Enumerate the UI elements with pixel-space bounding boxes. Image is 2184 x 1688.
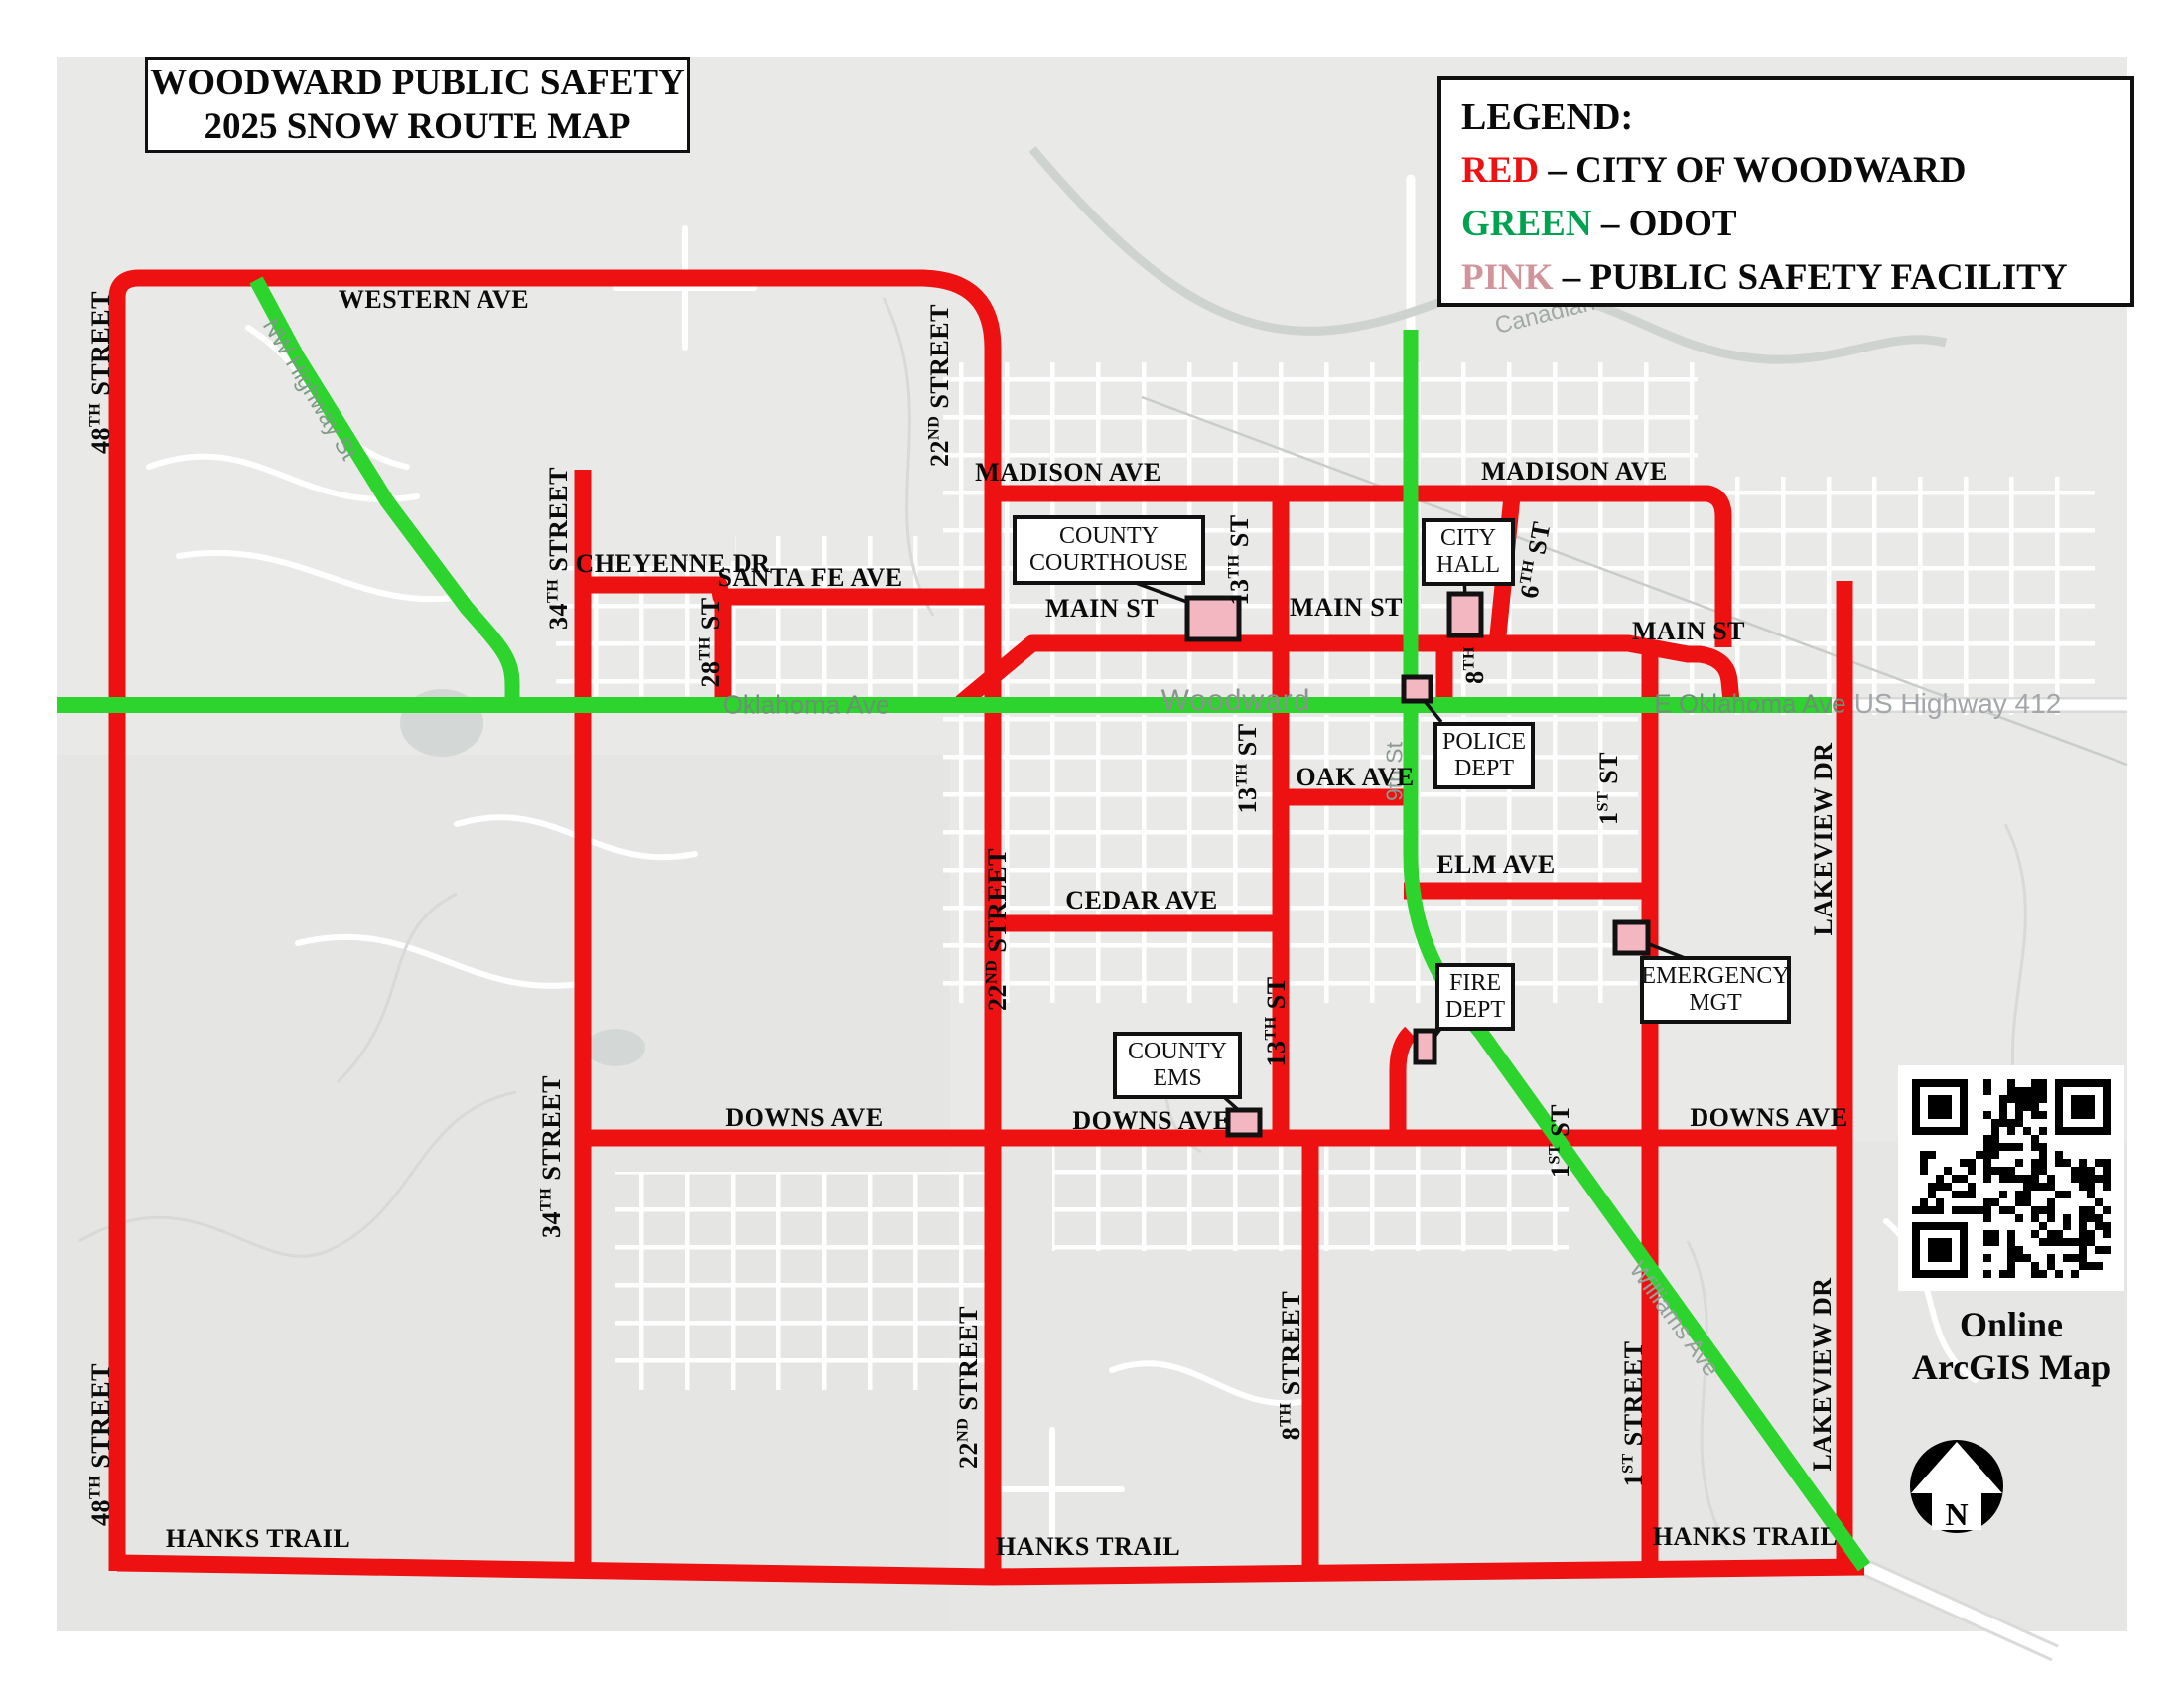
street-label-lakeview-dr-south: LAKEVIEW DR [1808,1277,1838,1471]
snow-route-map-page: N WOODWARD PUBLIC SAFETY 2025 SNOW ROUTE… [0,0,2184,1688]
street-label-13th-st-north: 13TH ST [1225,514,1255,605]
street-label-hanks-trail-center: HANKS TRAIL [996,1532,1180,1562]
street-label-1st-st-middle: 1ST ST [1546,1104,1575,1178]
callout-city-hall: CITY HALL [1422,518,1515,586]
callout-county-ems: COUNTY EMS [1113,1032,1242,1099]
map-label-e-oklahoma-ave: E Oklahoma Ave [1654,689,1845,720]
facility-square-city-hall [1449,594,1481,635]
street-label-22nd-street-middle: 22ND STREET [983,848,1013,1011]
street-label-34th-street-north: 34TH STREET [544,467,574,630]
street-label-13th-st-middle: 13TH ST [1233,723,1263,813]
legend-desc-green: ODOT [1629,204,1737,244]
street-label-santa-fe-ave: SANTA FE AVE [717,563,902,593]
street-label-main-st-center: MAIN ST [1290,593,1403,623]
pond-34th [586,1029,645,1066]
street-label-downs-ave-center: DOWNS AVE [1072,1106,1230,1136]
facility-square-fire [1416,1031,1434,1062]
callout-fire-dept: FIRE DEPT [1435,963,1515,1031]
legend: LEGEND: RED – CITY OF WOODWARD GREEN – O… [1437,76,2134,307]
legend-sep-red: – [1539,150,1575,191]
callout-emergency-mgt: EMERGENCY MGT [1640,956,1791,1024]
street-label-1st-street-south: 1ST STREET [1619,1341,1649,1487]
legend-sep-pink: – [1554,257,1590,298]
street-label-oak-ave: OAK AVE [1296,763,1414,792]
qr-code [1898,1065,2124,1291]
callout-county-courthouse: COUNTY COURTHOUSE [1013,515,1205,585]
street-label-madison-ave-west: MADISON AVE [975,458,1161,488]
map-label-woodward: Woodward [1161,684,1311,718]
street-label-8th: 8TH [1460,646,1490,684]
qr-caption-line2: ArcGIS Map [1912,1346,2111,1388]
street-label-madison-ave-east: MADISON AVE [1481,457,1668,487]
street-label-28th-st: 28TH ST [696,597,726,687]
street-label-elm-ave: ELM AVE [1436,850,1555,880]
north-arrow: N [1910,1440,2003,1533]
map-title-box: WOODWARD PUBLIC SAFETY 2025 SNOW ROUTE M… [145,57,690,153]
street-label-22nd-street-north: 22ND STREET [925,304,955,467]
map-title-line1: WOODWARD PUBLIC SAFETY [150,62,685,105]
legend-sep-green: – [1592,204,1629,244]
street-label-downs-ave-west: DOWNS AVE [725,1103,883,1133]
legend-row-red: RED – CITY OF WOODWARD [1461,144,2130,198]
street-label-34th-street-south: 34TH STREET [537,1075,567,1238]
street-label-cedar-ave: CEDAR AVE [1065,886,1218,915]
facility-square-ems [1228,1110,1260,1135]
map-title-line2: 2025 SNOW ROUTE MAP [205,105,631,149]
street-label-main-st-east: MAIN ST [1632,617,1745,646]
legend-key-pink: PINK [1461,257,1554,298]
street-label-hanks-trail-east: HANKS TRAIL [1653,1522,1838,1552]
street-label-1st-st-north: 1ST ST [1594,752,1624,825]
street-label-downs-ave-east: DOWNS AVE [1690,1103,1847,1133]
callout-police-dept: POLICE DEPT [1433,722,1535,789]
legend-heading: LEGEND: [1461,90,2130,144]
legend-row-green: GREEN – ODOT [1461,198,2130,251]
legend-key-green: GREEN [1461,204,1592,244]
street-label-48th-street-south: 48TH STREET [86,1363,116,1526]
street-label-48th-street-north: 48TH STREET [86,291,116,454]
legend-key-red: RED [1461,150,1539,191]
facility-square-emgmt [1615,922,1648,953]
street-label-western-ave: WESTERN AVE [339,285,529,315]
north-arrow-letter: N [1945,1496,1968,1532]
street-label-hanks-trail-west: HANKS TRAIL [166,1524,350,1554]
legend-desc-red: CITY OF WOODWARD [1575,150,1966,191]
street-label-22nd-street-south: 22ND STREET [954,1306,984,1469]
map-label-oklahoma-ave: Oklahoma Ave [723,690,890,721]
map-label-us-highway-412: US Highway 412 [1854,688,2062,720]
qr-caption-line1: Online [1960,1304,2063,1345]
legend-desc-pink: PUBLIC SAFETY FACILITY [1590,257,2068,298]
street-label-8th-street-south: 8TH STREET [1277,1291,1306,1440]
street-label-main-st-west: MAIN ST [1045,594,1159,624]
street-label-lakeview-dr-north: LAKEVIEW DR [1809,742,1839,935]
facility-square-police [1404,677,1431,701]
legend-row-pink: PINK – PUBLIC SAFETY FACILITY [1461,251,2130,305]
street-label-13th-st-south: 13TH ST [1262,976,1292,1066]
